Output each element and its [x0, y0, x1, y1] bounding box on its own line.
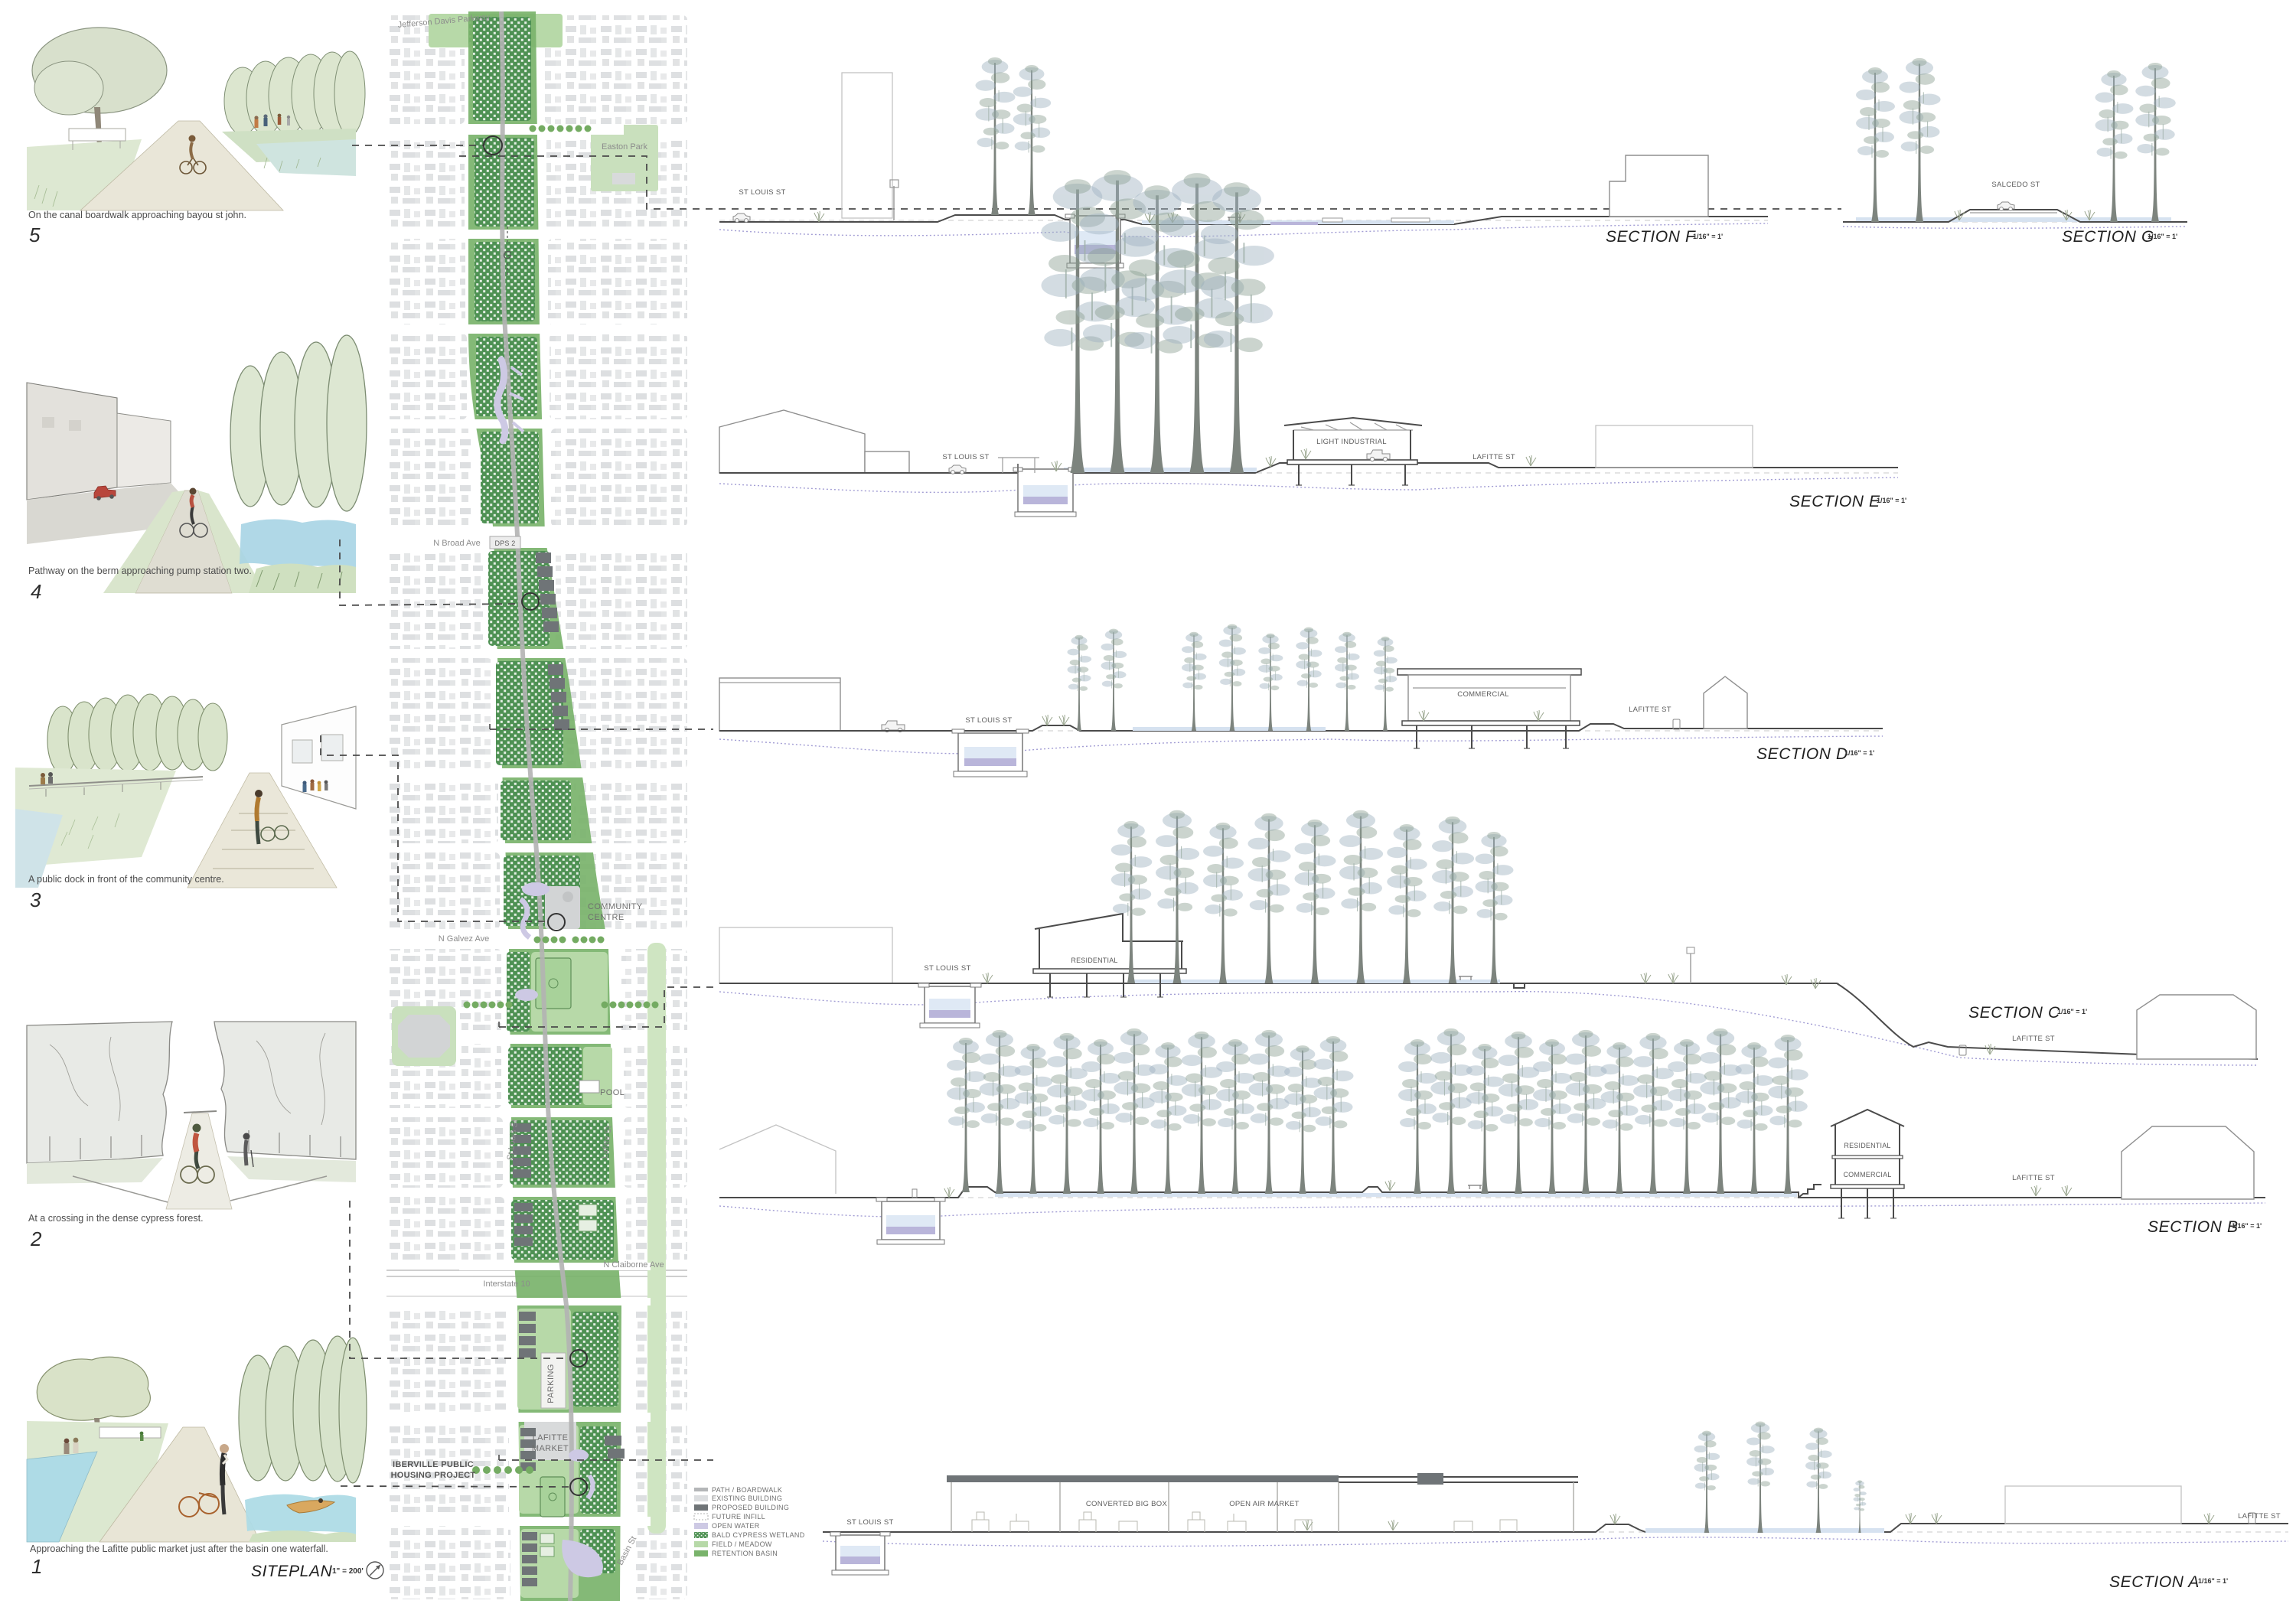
section-a-building-right: OPEN AIR MARKET: [1229, 1500, 1300, 1508]
swatch-existing: [694, 1495, 708, 1501]
section-b-building-upper: RESIDENTIAL: [1844, 1142, 1890, 1149]
section-g-scale: 1/16" = 1': [2148, 233, 2177, 240]
streetlight: [1687, 947, 1694, 983]
section-f-title: SECTION F: [1606, 228, 1696, 246]
legend-infill: FUTURE INFILL: [712, 1513, 765, 1521]
lafitte-greenway: [647, 943, 666, 1534]
vignette-5-number: 5: [29, 223, 41, 246]
vignette-1-art: [27, 1336, 367, 1542]
residential-commercial-building: [1831, 1110, 1904, 1218]
stadium-block: [392, 1006, 456, 1066]
legend-path: PATH / BOARDWALK: [712, 1486, 782, 1494]
vignette-1: Approaching the Lafitte public market ju…: [27, 1336, 367, 1578]
section-g-street: SALCEDO ST: [1991, 181, 2040, 189]
section-b-scale: 1/16" = 1': [2232, 1222, 2262, 1230]
section-d: ST LOUIS ST COMMERCIAL LAFITTE ST SECTIO…: [719, 624, 1883, 777]
section-d-scale: 1/16" = 1': [1844, 749, 1874, 757]
section-b-title: SECTION B: [2148, 1218, 2239, 1236]
section-c-building: RESIDENTIAL: [1071, 957, 1117, 964]
culvert: [952, 729, 1029, 777]
label-community-2: CENTRE: [588, 913, 625, 922]
vignette-2-number: 2: [30, 1227, 42, 1250]
vignette-4: Pathway on the berm approaching pump sta…: [27, 335, 367, 603]
label-iberville-2: HOUSING PROJECT: [391, 1471, 476, 1480]
section-b-street-right: LAFITTE ST: [2012, 1174, 2055, 1182]
section-e-street-right: LAFITTE ST: [1473, 453, 1515, 461]
section-a-building-left: CONVERTED BIG BOX: [1086, 1500, 1168, 1508]
section-g-title: SECTION G: [2062, 228, 2154, 246]
section-e-building: LIGHT INDUSTRIAL: [1316, 438, 1387, 446]
legend-existing: EXISTING BUILDING: [712, 1495, 782, 1502]
building-outline-left: [719, 1125, 836, 1194]
culvert: [830, 1532, 890, 1575]
swatch-path: [694, 1488, 708, 1491]
label-n-broad: N Broad Ave: [433, 539, 481, 548]
house-right: [2122, 1126, 2254, 1199]
tall-building-outline: [842, 73, 892, 218]
market-stalls: [972, 1512, 1517, 1532]
section-c: ST LOUIS ST RESIDENTIAL LAFITTE ST SECTI…: [719, 810, 2258, 1065]
section-a: ST LOUIS ST CONVERTED BIG BOX OPEN AIR M…: [823, 1422, 2288, 1591]
siteplan-scale: 1" = 200': [332, 1567, 364, 1576]
building-outline-left: [719, 927, 892, 983]
label-iberville-1: IBERVILLE PUBLIC: [393, 1460, 474, 1469]
section-a-street-left: ST LOUIS ST: [846, 1518, 893, 1527]
section-a-street-right: LAFITTE ST: [2238, 1512, 2281, 1521]
section-b-building-lower: COMMERCIAL: [1843, 1171, 1891, 1178]
swatch-infill: [694, 1514, 708, 1520]
house-right: [2137, 995, 2256, 1059]
stairs: [1799, 1185, 1821, 1198]
vignette-1-caption: Approaching the Lafitte public market ju…: [30, 1543, 328, 1554]
swatch-field: [694, 1541, 708, 1547]
basketball-hoop: [890, 180, 899, 220]
section-a-scale: 1/16" = 1': [2198, 1577, 2228, 1585]
building-outline-right: [1596, 425, 1753, 468]
label-community-1: COMMUNITY: [588, 902, 643, 911]
label-n-claiborne: N Claiborne Ave: [603, 1260, 664, 1270]
board-svg: On the canal boardwalk approaching bayou…: [0, 0, 2296, 1607]
culvert: [1013, 468, 1078, 517]
section-c-street-left: ST LOUIS ST: [924, 964, 970, 973]
svg-text:G: G: [503, 249, 512, 262]
vignette-4-art: [27, 335, 367, 593]
siteplan-map: Jefferson Davis Parkway Easton Park N Br…: [386, 11, 687, 1601]
hydrant: [912, 1189, 917, 1198]
label-dps2: DPS 2: [494, 539, 515, 547]
label-easton-park: Easton Park: [602, 142, 647, 152]
section-f-street: ST LOUIS ST: [739, 188, 785, 197]
vignette-5: On the canal boardwalk approaching bayou…: [27, 28, 365, 246]
section-d-street-right: LAFITTE ST: [1629, 706, 1671, 714]
pool-shape: [579, 1081, 599, 1093]
swatch-proposed: [694, 1504, 708, 1511]
vignette-2-art: [27, 1022, 356, 1209]
vignette-1-number: 1: [31, 1555, 42, 1578]
section-e-street-left: ST LOUIS ST: [942, 453, 989, 461]
label-n-galvez: N Galvez Ave: [439, 934, 489, 944]
swatch-cypress: [694, 1532, 708, 1538]
section-f: ST LOUIS ST SECTION F 1/16" = 1': [719, 57, 1768, 268]
label-parking: PARKING: [546, 1364, 556, 1403]
legend-field: FIELD / MEADOW: [712, 1540, 772, 1548]
section-c-street-right: LAFITTE ST: [2012, 1035, 2055, 1043]
vignette-5-art: [27, 28, 365, 210]
community-centre-building: [545, 886, 580, 929]
legend-cypress: BALD CYPRESS WETLAND: [712, 1531, 805, 1539]
building-left: [719, 678, 840, 731]
section-d-building: COMMERCIAL: [1457, 690, 1508, 699]
swatch-basin: [694, 1550, 708, 1556]
building-outline-right: [2005, 1486, 2181, 1524]
commercial-building: [1397, 669, 1581, 748]
section-e-scale: 1/16" = 1': [1877, 497, 1906, 504]
vignette-3-number: 3: [30, 888, 41, 911]
light-industrial-building: [1284, 418, 1422, 485]
section-c-scale: 1/16" = 1': [2057, 1008, 2087, 1015]
vignette-2: At a crossing in the dense cypress fores…: [27, 1022, 356, 1250]
culvert: [876, 1198, 945, 1244]
vignette-4-caption: Pathway on the berm approaching pump sta…: [28, 566, 252, 576]
label-market-2: MARKET: [532, 1444, 569, 1453]
stepped-building: [1609, 155, 1708, 217]
culvert: [918, 983, 981, 1028]
vignette-2-caption: At a crossing in the dense cypress fores…: [28, 1213, 204, 1224]
legend-water: OPEN WATER: [712, 1522, 760, 1530]
section-a-title: SECTION A: [2109, 1573, 2200, 1591]
residential-building: [1033, 914, 1186, 997]
label-market-1: LAFITTE: [533, 1433, 569, 1442]
house-left: [719, 410, 865, 473]
vignette-5-caption: On the canal boardwalk approaching bayou…: [28, 210, 246, 220]
vignette-4-number: 4: [31, 580, 41, 603]
swatch-water: [694, 1523, 708, 1529]
section-e-title: SECTION E: [1789, 493, 1880, 510]
siteplan-title: SITEPLAN: [251, 1563, 333, 1580]
presentation-board: On the canal boardwalk approaching bayou…: [0, 0, 2296, 1607]
section-d-title: SECTION D: [1756, 745, 1848, 763]
label-pool: POOL: [600, 1088, 625, 1097]
vignette-3-art: [15, 694, 356, 888]
vignette-3-caption: A public dock in front of the community …: [28, 874, 224, 885]
north-arrow-icon: [367, 1562, 383, 1579]
legend-basin: RETENTION BASIN: [712, 1550, 778, 1557]
legend: PATH / BOARDWALK EXISTING BUILDING PROPO…: [694, 1486, 805, 1557]
label-interstate: Interstate 10: [483, 1279, 530, 1289]
siteplan-title-block: SITEPLAN 1" = 200': [251, 1562, 383, 1580]
section-g: SALCEDO ST SECTION G 1/16" = 1': [1843, 58, 2187, 246]
section-d-street-left: ST LOUIS ST: [965, 716, 1012, 725]
section-c-title: SECTION C: [1968, 1004, 2060, 1022]
house-right: [1704, 676, 1747, 729]
legend-proposed: PROPOSED BUILDING: [712, 1504, 789, 1511]
section-f-scale: 1/16" = 1': [1693, 233, 1723, 240]
vignette-3: A public dock in front of the community …: [15, 694, 356, 911]
